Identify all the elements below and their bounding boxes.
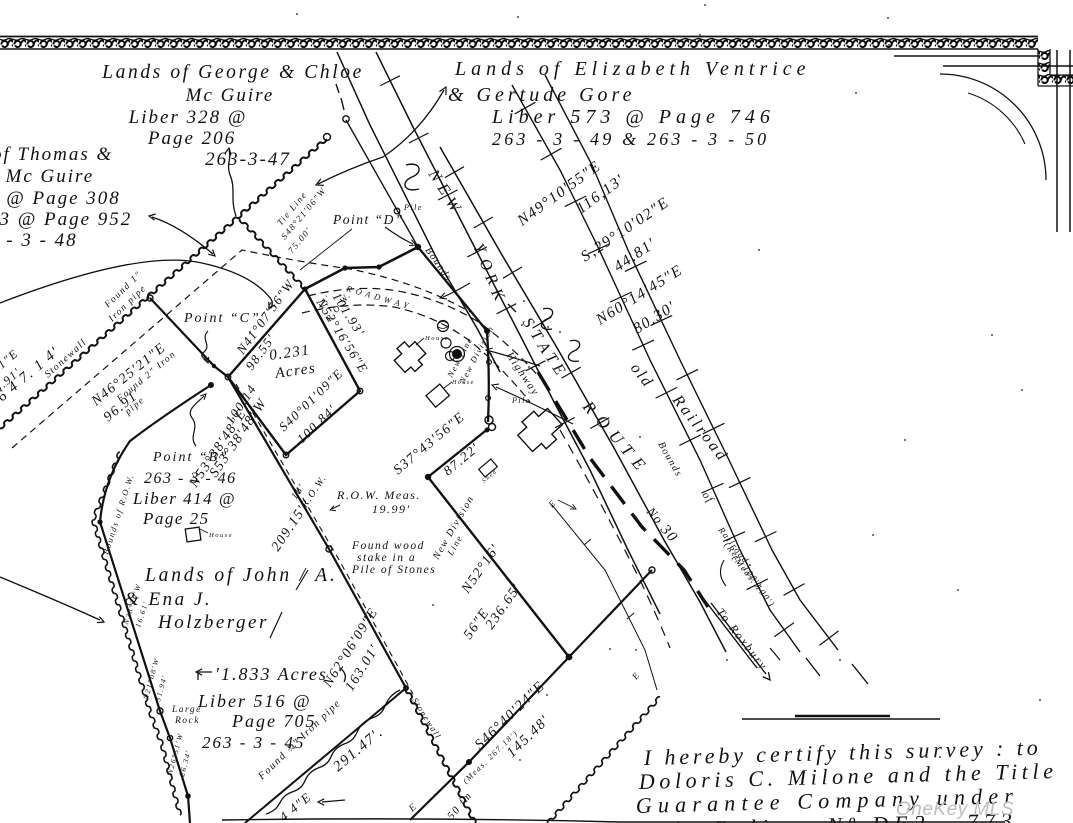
svg-text:R.O.W. Meas.: R.O.W. Meas. (336, 488, 421, 502)
svg-text:87.22′: 87.22′ (440, 440, 482, 479)
svg-text:& Ena J.: & Ena J. (124, 589, 212, 610)
svg-text:13 @ Page 952: 13 @ Page 952 (0, 209, 132, 230)
svg-text:R O A D W A Y: R O A D W A Y (344, 283, 410, 311)
svg-text:Acres: Acres (273, 360, 317, 382)
svg-text:4 4″E: 4 4″E (276, 789, 314, 823)
svg-text:19.99′: 19.99′ (372, 502, 411, 516)
svg-text:209.15′: 209.15′ (269, 503, 311, 555)
svg-text:House: House (208, 532, 233, 539)
svg-text:Point “D”: Point “D” (332, 212, 404, 227)
svg-text:To Roxbury: To Roxbury (714, 605, 771, 673)
svg-text:Point “C”: Point “C” (183, 311, 261, 326)
svg-text:263 - 3 - 49 & 263 - 3 - 50: 263 - 3 - 49 & 263 - 3 - 50 (492, 129, 769, 149)
svg-text:Bounds: Bounds (655, 440, 684, 479)
svg-text:House: House (451, 380, 475, 386)
svg-text:R: R (578, 397, 601, 419)
svg-text:Point “B”: Point “B” (152, 450, 229, 465)
svg-text:Liber 516 @: Liber 516 @ (197, 691, 312, 711)
svg-text:Page 25: Page 25 (142, 509, 210, 528)
svg-text:Liber 328 @: Liber 328 @ (128, 107, 248, 128)
svg-text:Railroad: Railroad (668, 391, 731, 466)
svg-text:Lands of George & Chloe: Lands of George & Chloe (101, 62, 364, 83)
svg-text:OneKey MLS: OneKey MLS (896, 799, 1014, 820)
svg-text:Found wood: Found wood (351, 540, 425, 552)
svg-text:263 - 3 - 46: 263 - 3 - 46 (144, 470, 237, 487)
svg-text:Page 206: Page 206 (147, 128, 236, 149)
svg-text:. Mc Guire: . Mc Guire (0, 166, 94, 187)
svg-text:Shed: Shed (481, 469, 498, 485)
svg-text:Е: Е (629, 669, 642, 682)
svg-text:Holzberger: Holzberger (157, 612, 269, 633)
svg-text:of Thomas &: of Thomas & (0, 144, 113, 165)
svg-text:(Meas. 100′): (Meas. 100′) (730, 553, 777, 609)
svg-text:′1.833 Acres: ′1.833 Acres (215, 664, 328, 684)
svg-text:Mc Guire: Mc Guire (185, 85, 275, 106)
svg-text:Liber 573 @ Page 746: Liber 573 @ Page 746 (491, 106, 775, 128)
svg-text:E: E (627, 453, 650, 475)
svg-text:Liber 414 @: Liber 414 @ (132, 489, 236, 508)
svg-text:7 @ Page 308: 7 @ Page 308 (0, 188, 121, 209)
svg-text:263-3-47: 263-3-47 (205, 149, 291, 170)
svg-text:Pile: Pile (511, 396, 531, 405)
svg-text:Lands of Elizabeth Ventrice: Lands of Elizabeth Ventrice (454, 58, 811, 80)
svg-text:Rock: Rock (174, 716, 200, 726)
svg-text:30: 30 (656, 521, 681, 546)
svg-text:291.47′.: 291.47′. (330, 724, 386, 775)
svg-text:Bounds: Bounds (423, 245, 454, 283)
svg-text:& Gertude Gore: & Gertude Gore (448, 84, 635, 106)
svg-text:Lands of John / A.: Lands of John / A. (144, 565, 338, 586)
svg-text:N52°16′: N52°16′ (458, 541, 503, 597)
svg-text:236.65′: 236.65′ (483, 581, 525, 632)
svg-text:K: K (487, 285, 508, 305)
svg-text:3 - 3 - 48: 3 - 3 - 48 (0, 230, 78, 251)
svg-text:Е: Е (546, 497, 559, 510)
svg-text:Pile of Stones: Pile of Stones (351, 564, 436, 576)
svg-text:0.231: 0.231 (268, 342, 311, 364)
svg-text:Bounds of R.O.W.: Bounds of R.O.W. (100, 472, 136, 555)
svg-text:stake in a: stake in a (357, 552, 416, 564)
svg-text:W: W (442, 195, 465, 217)
